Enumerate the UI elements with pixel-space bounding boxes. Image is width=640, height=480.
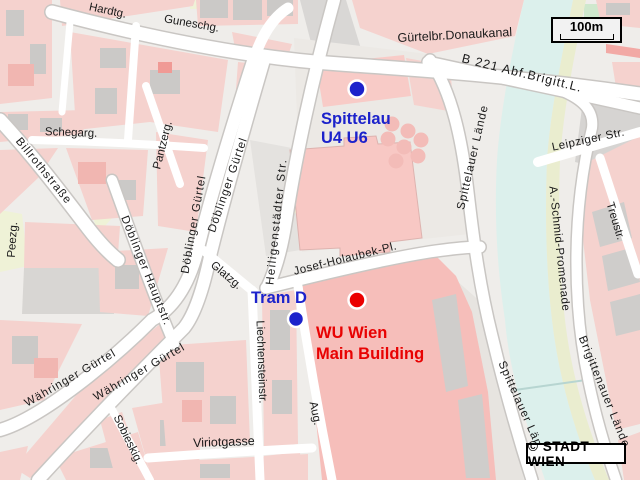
marker-dot-wu-wien[interactable] [349,292,366,309]
street-label-schegarg: Schegarg. [45,126,98,140]
street-label-viriotgasse: Viriotgasse [193,434,255,450]
map-vector-layer: Hardtg.Guneschg.Gürtelbr.DonaukanalB 221… [0,0,640,480]
copyright-label: © STADT WIEN [528,439,624,469]
marker-dot-spittelau-station[interactable] [349,81,366,98]
scale-label: 100m [570,20,603,33]
marker-label-wu-wien-line1: WU Wien [316,324,387,342]
street-label-peezg: Peezg. [6,222,20,259]
scale-bracket [560,34,614,40]
map-canvas[interactable]: Hardtg.Guneschg.Gürtelbr.DonaukanalB 221… [0,0,640,480]
marker-label-wu-wien-line2: Main Building [316,345,424,363]
marker-label-spittelau-station-line2: U4 U6 [321,129,368,147]
marker-label-spittelau-station-line1: Spittelau [321,110,391,128]
marker-dot-tram-d-stop[interactable] [288,311,304,327]
marker-label-tram-d-stop-line1: Tram D [251,289,307,307]
copyright-box: © STADT WIEN [526,443,626,464]
scale-box: 100m [551,17,622,43]
